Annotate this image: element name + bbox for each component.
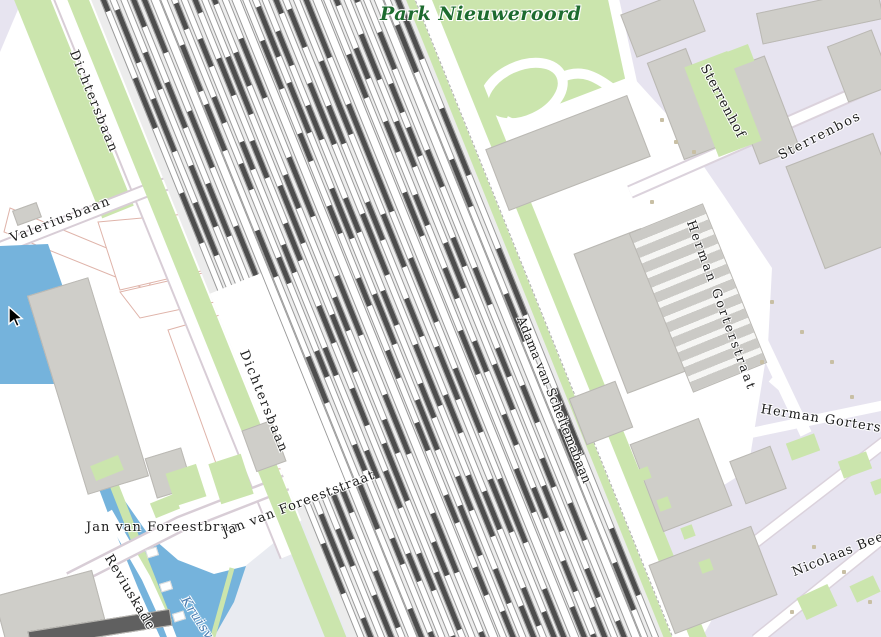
tree-dot [660, 118, 664, 122]
tree-dot [842, 570, 846, 574]
tree-dot [850, 395, 854, 399]
tree-dot [692, 150, 696, 154]
tree-dot [868, 600, 872, 604]
tree-dot [830, 360, 834, 364]
tree-dot [770, 300, 774, 304]
tree-dot [674, 140, 678, 144]
place-label-jan-van-foreestbrug: Jan van Foreestbrug [86, 520, 239, 535]
park-label: Park Nieuweroord [380, 3, 581, 25]
tree-dot [760, 360, 764, 364]
mouse-cursor [8, 306, 30, 334]
tree-dot [800, 330, 804, 334]
tree-dot [812, 545, 816, 549]
map-canvas[interactable]: Park Nieuweroord Dichtersbaan Dichtersba… [0, 0, 881, 637]
tree-dot [650, 200, 654, 204]
tree-dot [790, 610, 794, 614]
